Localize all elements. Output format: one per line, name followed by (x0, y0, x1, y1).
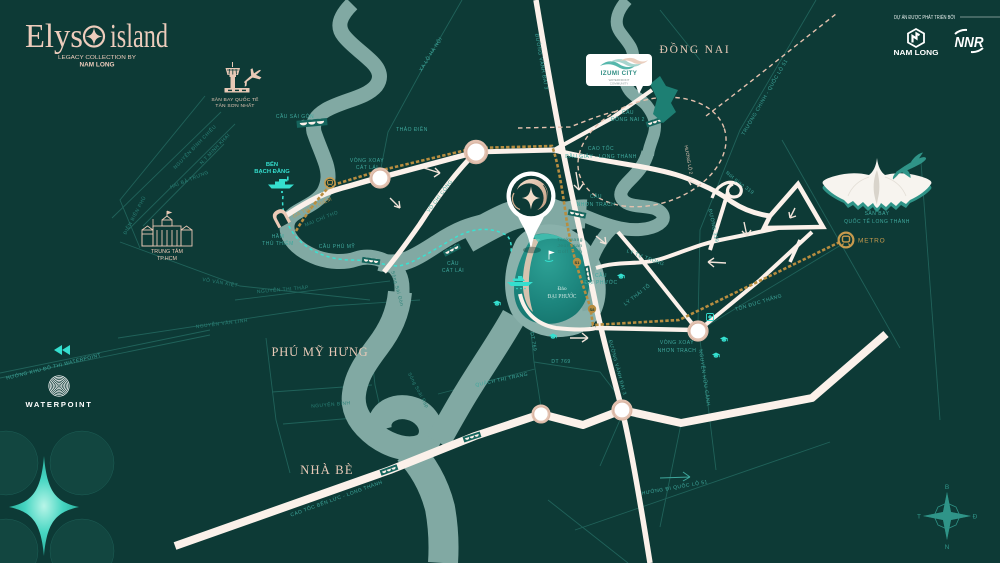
svg-text:CẦU SÀI GÒN: CẦU SÀI GÒN (276, 113, 314, 120)
svg-text:SÂN BAY: SÂN BAY (865, 210, 890, 217)
svg-text:METRO: METRO (858, 238, 885, 245)
svg-text:THẢO ĐIỀN: THẢO ĐIỀN (396, 126, 428, 133)
svg-text:BẾN: BẾN (266, 161, 278, 168)
svg-text:ĐẠI PHƯỚC: ĐẠI PHƯỚC (584, 279, 617, 286)
svg-text:QUỐC TẾ LONG THÀNH: QUỐC TẾ LONG THÀNH (844, 218, 910, 225)
svg-text:SÂN BAY QUỐC TẾ: SÂN BAY QUỐC TẾ (211, 96, 259, 103)
svg-text:NHÀ BÈ: NHÀ BÈ (300, 463, 353, 477)
svg-text:NHƠN TRẠCH: NHƠN TRẠCH (577, 202, 616, 208)
svg-text:COMMUNITY: COMMUNITY (610, 82, 629, 86)
svg-text:PHÚ MỸ HƯNG: PHÚ MỸ HƯNG (272, 345, 369, 359)
svg-text:N: N (945, 544, 950, 551)
svg-text:VÒNG XOAY: VÒNG XOAY (660, 339, 694, 346)
svg-text:DẦU GIÂY - LONG THÀNH: DẦU GIÂY - LONG THÀNH (565, 153, 636, 160)
svg-text:B: B (945, 484, 949, 491)
svg-text:Đảo: Đảo (557, 286, 567, 292)
svg-text:CẦU: CẦU (447, 260, 459, 267)
svg-text:Taekwang: Taekwang (557, 237, 583, 243)
svg-text:CAO TỐC: CAO TỐC (588, 145, 614, 152)
svg-text:CẦU: CẦU (622, 109, 634, 116)
svg-text:Jeongsan: Jeongsan (557, 243, 582, 249)
svg-text:WATERPOINT: WATERPOINT (25, 400, 92, 409)
svg-text:ĐẠI PHƯỚC: ĐẠI PHƯỚC (548, 292, 577, 300)
svg-text:NHƠN TRẠCH: NHƠN TRẠCH (658, 348, 697, 354)
svg-text:NNR: NNR (955, 35, 984, 51)
svg-text:TRUNG TÂM: TRUNG TÂM (151, 248, 183, 255)
svg-text:CẦU PHÚ MỸ: CẦU PHÚ MỸ (319, 243, 356, 250)
svg-text:TP.HCM: TP.HCM (157, 256, 177, 262)
svg-text:TÂN SƠN NHẤT: TÂN SƠN NHẤT (215, 102, 254, 109)
svg-text:S1: S1 (575, 260, 581, 265)
svg-text:S8: S8 (590, 307, 596, 312)
svg-text:DỰ ÁN ĐƯỢC PHÁT TRIỂN BỞI: DỰ ÁN ĐƯỢC PHÁT TRIỂN BỞI (894, 14, 955, 21)
svg-text:ĐỒNG NAI 2: ĐỒNG NAI 2 (611, 116, 645, 123)
svg-text:VÒNG XOAY: VÒNG XOAY (350, 157, 384, 164)
svg-text:BẠCH ĐẰNG: BẠCH ĐẰNG (254, 167, 290, 175)
svg-text:NAM LONG: NAM LONG (80, 63, 115, 69)
svg-text:T: T (917, 514, 921, 521)
svg-text:CẦU: CẦU (595, 272, 607, 279)
svg-text:DT 769: DT 769 (551, 359, 570, 365)
svg-text:CÁT LÁI: CÁT LÁI (442, 267, 464, 274)
svg-text:HẦM: HẦM (272, 233, 285, 240)
svg-text:NAM LONG: NAM LONG (894, 50, 940, 57)
svg-text:IZUMI CITY: IZUMI CITY (601, 70, 638, 77)
svg-text:LEGACY COLLECTION BY: LEGACY COLLECTION BY (58, 55, 137, 61)
svg-text:island: island (110, 18, 168, 55)
svg-text:Elys: Elys (25, 18, 83, 55)
svg-text:CÁT LÁI: CÁT LÁI (356, 164, 378, 171)
svg-text:ĐỒNG NAI: ĐỒNG NAI (660, 41, 731, 56)
svg-text:CẦU: CẦU (590, 193, 602, 200)
svg-text:Đ: Đ (973, 514, 978, 521)
svg-text:THỦ THIÊM: THỦ THIÊM (262, 239, 294, 247)
svg-text:Golf Club: Golf Club (558, 249, 583, 255)
